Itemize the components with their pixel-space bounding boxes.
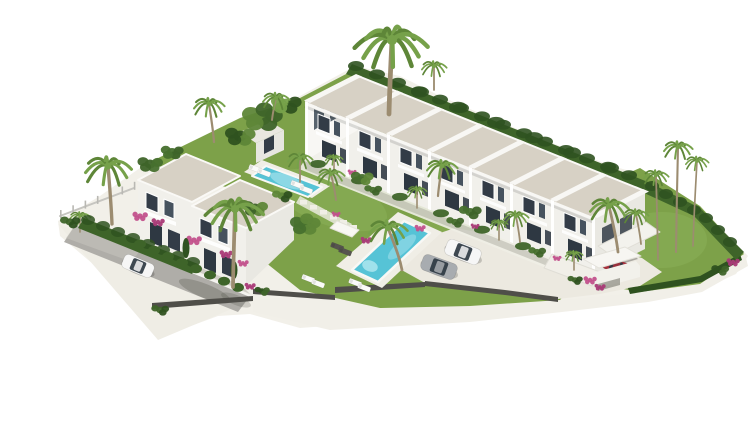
ell (579, 153, 595, 163)
ell (204, 271, 216, 280)
poly (545, 230, 551, 247)
render-canvas (0, 0, 756, 432)
tall-cypress (183, 238, 190, 258)
ell (148, 246, 160, 255)
ell (411, 87, 429, 98)
poly (346, 117, 349, 177)
rect (122, 187, 124, 195)
poly (539, 203, 545, 220)
ell (369, 69, 385, 79)
ell (723, 237, 737, 247)
poly (387, 134, 390, 194)
ell (621, 170, 637, 180)
poly (457, 170, 463, 187)
poly (381, 164, 387, 181)
poly (592, 216, 595, 276)
poly (498, 186, 504, 203)
ell (432, 95, 448, 105)
ell (392, 193, 408, 201)
ell (176, 258, 188, 267)
poly (375, 137, 381, 154)
rect (310, 205, 317, 210)
ell (673, 197, 687, 207)
rect (320, 210, 327, 215)
ell (111, 227, 125, 237)
ell (433, 209, 449, 217)
ell (601, 163, 619, 174)
ell (162, 252, 174, 261)
ell (348, 61, 364, 71)
poly (334, 121, 340, 138)
ell (449, 102, 467, 113)
aerial-render-image (0, 0, 756, 432)
rect (85, 201, 87, 209)
poly (416, 153, 422, 170)
ell (699, 213, 713, 223)
rect (134, 182, 136, 190)
house-a-window (164, 199, 174, 219)
ell (525, 132, 543, 143)
poly (551, 200, 554, 260)
poly (580, 219, 586, 236)
poly (305, 101, 308, 161)
rect (72, 205, 74, 213)
ell (659, 189, 673, 199)
palm-small-top (422, 61, 447, 90)
poly (428, 150, 431, 210)
rect (300, 200, 307, 205)
ell (190, 264, 202, 273)
rect (60, 210, 62, 218)
ell (96, 221, 110, 231)
ell (310, 160, 326, 168)
rect (97, 196, 99, 204)
ell (487, 117, 505, 128)
ell (218, 277, 230, 286)
ell (711, 225, 725, 235)
ell (134, 240, 146, 249)
ell (474, 111, 490, 121)
ell (563, 147, 581, 158)
ell (81, 215, 95, 225)
ell (515, 242, 531, 250)
